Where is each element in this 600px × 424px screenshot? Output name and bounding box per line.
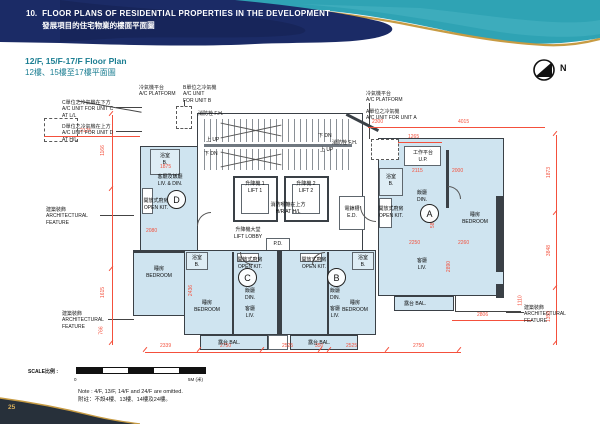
label-zh: 露台 <box>218 340 228 346</box>
label-en2: AT H/L <box>62 137 113 143</box>
unit-b-circle: B <box>327 268 346 287</box>
dim-label: 1265 <box>408 135 419 140</box>
callout-ac-unit-b: B單位之冷氣機A/C UNITFOR UNIT B <box>183 85 216 104</box>
dim-line <box>452 320 532 321</box>
room-label-a-openkit: 開放式廚房OPEN KIT. <box>374 206 408 219</box>
dim-label: 2525 <box>346 344 357 349</box>
unit-d-circle: D <box>167 190 186 209</box>
leader-line <box>506 312 524 313</box>
label-zh: 露台 <box>404 301 414 307</box>
unit-letter: D <box>173 195 180 205</box>
label-en: LIFT 1 <box>235 188 275 195</box>
corner-tear <box>0 392 140 424</box>
callout-ac-platform-right: 冷氣機平台A/C PLATFORM <box>366 91 403 104</box>
label-en: B. <box>352 262 374 269</box>
label-en: BAL. <box>229 340 240 346</box>
page-number: 25 <box>8 404 15 411</box>
label-en: ARCHITECTURAL <box>524 311 566 317</box>
label-zh: 消防栓 <box>198 111 213 117</box>
label-en2: FOR UNIT B <box>183 98 216 104</box>
label-en: BAL. <box>319 340 330 346</box>
brochure-page: 10. FLOOR PLANS OF RESIDENTIAL PROPERTIE… <box>0 0 600 424</box>
north-label: N <box>560 63 567 73</box>
label-en: F.H. <box>348 140 357 146</box>
header-title-en: FLOOR PLANS OF RESIDENTIAL PROPERTIES IN… <box>42 9 330 18</box>
dim-label: 2115 <box>412 169 423 174</box>
label-en: BAL. <box>415 301 426 307</box>
fire-hydrant-label: 消防栓 F.H. <box>198 110 223 117</box>
plan-title-zh: 12樓、15樓至17樓平面圖 <box>25 67 127 78</box>
scale-segment <box>154 368 180 373</box>
callout-arch-feature-left: 建築裝飾ARCHITECTURALFEATURE <box>46 207 88 226</box>
label-en: LIV. <box>412 265 432 272</box>
room-label-lift-lobby: 升降機大堂LIFT LOBBY <box>226 227 270 240</box>
scale-segment <box>77 368 103 373</box>
dim-label: 1873 <box>547 167 552 178</box>
label-en: F.H. <box>214 111 223 117</box>
header-title-block: 10. FLOOR PLANS OF RESIDENTIAL PROPERTIE… <box>26 9 330 31</box>
header-titles: FLOOR PLANS OF RESIDENTIAL PROPERTIES IN… <box>42 9 330 31</box>
dim-label: 2080 <box>146 229 157 234</box>
label-en: H/R AT H/L <box>266 209 310 216</box>
label-en: BEDROOM <box>458 219 492 226</box>
dim-label: 3848 <box>547 245 552 256</box>
wall <box>496 284 504 298</box>
scale-segment <box>128 368 154 373</box>
label-en: B. <box>380 181 402 188</box>
label-zh: 露台 <box>308 340 318 346</box>
label-en: B. <box>186 262 208 269</box>
label-zh: 開放式廚房 <box>374 206 408 213</box>
dim-line <box>145 352 461 353</box>
room-label-a-up: 工作平台U.P. <box>406 150 440 163</box>
ac-unit-b-dashed-box <box>176 106 192 129</box>
room-label-c-bath: 浴室B. <box>186 255 208 268</box>
label-en: BEDROOM <box>192 307 222 314</box>
label-en: A/C UNIT FOR UNIT D <box>62 130 113 136</box>
leader-line <box>116 107 142 108</box>
party-wall <box>277 250 282 335</box>
room-label-a-bath: 浴室B. <box>380 174 402 187</box>
plan-title-en: 12/F, 15/F-17/F Floor Plan <box>25 56 127 66</box>
label-en: BEDROOM <box>340 307 370 314</box>
dim-line <box>398 127 545 128</box>
room-label-d-bedroom: 睡房BEDROOM <box>144 266 174 279</box>
stair-dn-label: 下 DN <box>204 150 218 157</box>
room-label-c-bal: 露台 BAL. <box>218 339 240 346</box>
dim-label: 2000 <box>452 169 463 174</box>
scale-segment <box>103 368 129 373</box>
dim-line <box>112 115 113 345</box>
callout-ac-platform-left: 冷氣機平台A/C PLATFORM <box>139 85 176 98</box>
label-en: OPEN KIT. <box>296 264 332 271</box>
unit-letter: B <box>333 273 339 283</box>
dim-label: 1615 <box>101 287 106 298</box>
room-label-a-bal: 露台 BAL. <box>404 300 426 307</box>
room-label-d-livdin: 客廳及飯廳LIV. & DIN. <box>150 174 190 187</box>
label-en: OPEN KIT. <box>374 213 408 220</box>
dim-label: 2339 <box>160 344 171 349</box>
label-zh: 開放式廚房 <box>232 257 268 264</box>
unit-d-bedroom-block <box>133 252 186 316</box>
dim-label: 2525 <box>282 344 293 349</box>
label-en: A/C PLATFORM <box>366 97 403 103</box>
room-label-b-openkit: 開放式廚房OPEN KIT. <box>296 257 332 270</box>
dim-label: 2806 <box>477 313 488 318</box>
label-en: DIN. <box>412 197 432 204</box>
label-en: A/C UNIT FOR UNIT C <box>62 106 113 112</box>
label-en: U.P. <box>406 157 440 164</box>
callout-ac-unit-c: C單位之冷氣機在下方A/C UNIT FOR UNIT CAT L/L <box>62 100 113 119</box>
dim-label: 2750 <box>413 344 424 349</box>
scale-bar <box>76 367 206 374</box>
room-label-hose-reel: 消防喉轆在上方H/R AT H/L <box>266 202 310 215</box>
label-en: LIFT 2 <box>286 188 326 195</box>
scale-segment <box>179 368 205 373</box>
wall <box>446 150 449 208</box>
scale-label: SCALE比例 : <box>28 368 58 375</box>
header-subtitle-zh: 發展項目的住宅物業的樓面平面圖 <box>42 20 330 31</box>
room-label-lift1: 升降機 1LIFT 1 <box>235 181 275 194</box>
label-zh: 開放式廚房 <box>296 257 332 264</box>
dim-label: 1166 <box>101 145 106 156</box>
room-label-lift2: 升降機 2LIFT 2 <box>286 181 326 194</box>
room-label-d-bath: 浴室B. <box>152 153 178 166</box>
label-en: LIV. & DIN. <box>150 181 190 188</box>
wall <box>496 196 504 272</box>
dim-line <box>368 127 398 128</box>
room-label-a-din: 飯廳DIN. <box>412 190 432 203</box>
callout-ac-unit-a: A單位之冷氣機A/C UNIT FOR UNIT A <box>366 109 417 122</box>
label-en: DIN. <box>240 295 260 302</box>
plan-title: 12/F, 15/F-17/F Floor Plan 12樓、15樓至17樓平面… <box>25 56 127 78</box>
room-label-b-bal: 露台 BAL. <box>308 339 330 346</box>
unit-a-circle: A <box>420 204 439 223</box>
label-en: OPEN KIT. <box>139 205 173 212</box>
unit-letter: A <box>426 209 432 219</box>
stair-up-label: 上 UP <box>320 146 333 153</box>
dim-label: 2250 <box>409 241 420 246</box>
dim-label: 1110 <box>519 295 524 305</box>
scale-zero: 0 <box>74 377 77 382</box>
dim-line <box>398 142 442 143</box>
label-en: LIV. <box>240 313 260 320</box>
label-en: B. <box>152 160 178 167</box>
unit-letter: C <box>244 273 251 283</box>
label-en: A/C UNIT FOR UNIT A <box>366 115 417 121</box>
label-en2: FEATURE <box>46 220 88 226</box>
room-label-c-liv: 客廳LIV. <box>240 306 260 319</box>
label-en: A/C PLATFORM <box>139 91 176 97</box>
label-en: ARCHITECTURAL <box>62 317 104 323</box>
label-en2: FEATURE <box>62 324 104 330</box>
label-en: LIV. <box>325 313 345 320</box>
room-label-b-bedroom: 睡房BEDROOM <box>340 300 370 313</box>
label-en: P.D. <box>268 241 288 248</box>
dim-label: 2436 <box>189 285 194 296</box>
callout-arch-feature-bottom-right: 建築裝飾ARCHITECTURALFEATURE <box>524 305 566 324</box>
label-zh: 消防栓 <box>332 140 347 146</box>
label-en: LIFT LOBBY <box>226 234 270 241</box>
unit-c-circle: C <box>238 268 257 287</box>
dim-label: 2260 <box>458 241 469 246</box>
dim-label: 4015 <box>458 120 469 125</box>
north-arrow-icon <box>531 56 561 84</box>
room-label-b-bath: 浴室B. <box>352 255 374 268</box>
callout-ac-unit-d: D單位之冷氣機在上方A/C UNIT FOR UNIT DAT H/L <box>62 124 113 143</box>
room-label-a-bedroom: 睡房BEDROOM <box>458 212 492 225</box>
label-en2: FEATURE <box>524 318 566 324</box>
callout-arch-feature-bottom-left: 建築裝飾ARCHITECTURALFEATURE <box>62 311 104 330</box>
room-label-pipe-duct: P.D. <box>268 241 288 248</box>
room-label-c-din: 飯廳DIN. <box>240 288 260 301</box>
stair-dn-label: 下 DN <box>318 132 332 139</box>
room-label-c-bedroom: 睡房BEDROOM <box>192 300 222 313</box>
label-zh: 消防喉轆在上方 <box>266 202 310 209</box>
label-en: ARCHITECTURAL <box>46 213 88 219</box>
arch-feature-line <box>455 296 456 311</box>
ac-unit-a-dashed-box <box>371 139 399 160</box>
stair-up-label: 上 UP <box>206 136 219 143</box>
dim-label: 2890 <box>447 261 452 272</box>
room-label-a-liv: 客廳LIV. <box>412 258 432 271</box>
label-en: E.D. <box>340 213 364 220</box>
scale-max: 5M (米) <box>188 377 203 383</box>
leader-line <box>116 131 142 132</box>
leader-line <box>100 215 134 216</box>
room-label-elec-duct: 電錶槽E.D. <box>340 206 364 219</box>
fire-hydrant-label: 消防栓 F.H. <box>332 139 357 146</box>
header-section-no: 10. <box>26 9 37 31</box>
label-en2: AT L/L <box>62 113 113 119</box>
label-en: BEDROOM <box>144 273 174 280</box>
